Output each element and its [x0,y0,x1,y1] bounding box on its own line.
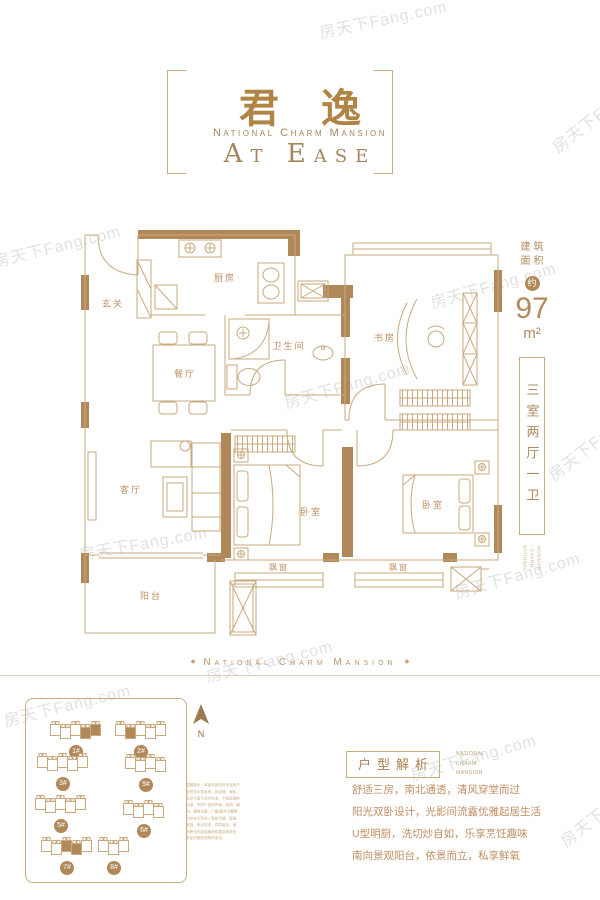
walls-and-fixtures [85,235,498,635]
disclaimer-text: 温馨提示：本宣传资料所涉及的户型仅供示意参考，其设施、家私、陈设不属于交付标准，… [186,782,245,842]
building-6: 6# [123,800,165,838]
label-bay-window-2: 飘窗 [389,562,409,572]
label-bathroom: 卫生间 [272,340,305,351]
building-footprint [115,721,167,739]
spec-column: 建筑 面积 约 97 m² 三室两厅一卫 NationalCharmMansio… [508,241,556,571]
watermark: 房天下Fang.com [317,0,449,43]
divider-line [0,675,600,676]
analysis-paragraphs: 舒适三房，南北通透，清风穿堂而过阳光双卧设计，光影间流露优雅起居生活U型明厨，洗… [352,779,598,867]
text-line: Charm [456,760,485,770]
text-line: Mansion [456,769,485,779]
divider-ornament-right: ◆ [397,659,418,665]
building-7: 7# [41,837,93,875]
building-badge: 3# [56,777,70,791]
project-tagline: At Ease [0,139,600,169]
analysis-title-box: 户型解析 [346,751,440,778]
building-8: 8# [98,837,130,875]
north-arrow-icon [192,704,210,726]
label-dining: 餐厅 [174,368,196,379]
text-line: 审定的差别而有所变化。 [186,835,245,842]
building-footprint [125,754,167,772]
text-line: 型仅供示意参考，其设施、家私、 [186,789,245,796]
label-kitchen: 厨房 [214,272,236,283]
building-badge: 8# [107,861,121,875]
spec-brand-vertical: NationalCharmMansion [508,545,556,571]
area-value: 97 [508,293,556,325]
text-line: 南向景观阳台，依景而立，私享鲜氧 [352,845,598,867]
building-9: 9# [125,754,167,792]
building-footprint [37,753,89,771]
building-footprint [35,795,87,813]
project-subtitle-en: National Charm Mansion [0,127,600,139]
analysis-brand-lines: NationalCharmMansion [456,750,485,779]
building-footprint [123,800,165,818]
text-line: 标准、不同户型的布局、结构、朝 [186,802,245,809]
text-line: 温馨提示：本宣传资料所涉及的户 [186,782,245,789]
label-study: 书房 [374,332,396,343]
building-badge: 9# [139,778,153,792]
north-label: N [190,729,212,739]
floor-plan: 玄关 厨房 餐厅 卫生间 书房 客厅 卧室 卧室 阳台 飘窗 飘窗 [55,215,505,640]
text-line: 均存在不完全一致的可能，层高、 [186,815,245,822]
layout-badge: 三室两厅一卫 [519,357,545,535]
label-bedroom-1: 卧室 [300,506,322,517]
building-3: 3# [37,753,89,791]
text-line: National [456,750,485,760]
label-entry: 玄关 [102,298,124,309]
area-unit: m² [508,325,556,343]
text-line: National [523,545,528,571]
north-indicator: N [190,704,212,739]
project-title: 君逸 [0,76,600,134]
text-line: Mansion [537,545,542,571]
site-plan: 1#2#3#9#5#6#7#8# [25,698,187,883]
building-5: 5# [35,795,87,833]
text-line: 阳光双卧设计，光影间流露优雅起居生活 [352,801,598,823]
divider-text: National Charm Mansion [203,657,396,668]
label-bedroom-2: 卧室 [422,499,444,510]
approx-badge: 约 [525,276,540,291]
label-living: 客厅 [120,484,142,495]
analysis-title: 户型解析 [352,757,434,772]
building-footprint [50,721,102,739]
text-line: 舒适三房，南北通透，清风穿堂而过 [352,779,598,801]
text-line: 积等也可能因楼栋和楼层审批的 [186,829,245,836]
text-line: U型明厨，洗切炒自如，乐享烹饪趣味 [352,823,598,845]
text-line: Charm [530,545,535,571]
building-footprint [98,837,130,855]
building-footprint [41,837,93,855]
page: 房天下Fang.com房天下Fang.com房天下Fang.com房天下Fang… [0,0,600,900]
text-line: 向、管线位置、门窗/管井位置等 [186,809,245,816]
building-badge: 5# [54,819,68,833]
text-line: 报批、单元构成、同层组合、面 [186,822,245,829]
building-badge: 6# [137,824,151,838]
label-bay-window-1: 飘窗 [269,562,289,572]
divider-ornament-left: ◆ [183,659,204,665]
label-balcony: 阳台 [140,590,162,601]
section-divider: ◆National Charm Mansion◆ [0,652,600,676]
area-label: 建筑 面积 [508,241,556,269]
text-line: 陈设不属于交付标准，不同房源的 [186,795,245,802]
building-badge: 7# [60,861,74,875]
